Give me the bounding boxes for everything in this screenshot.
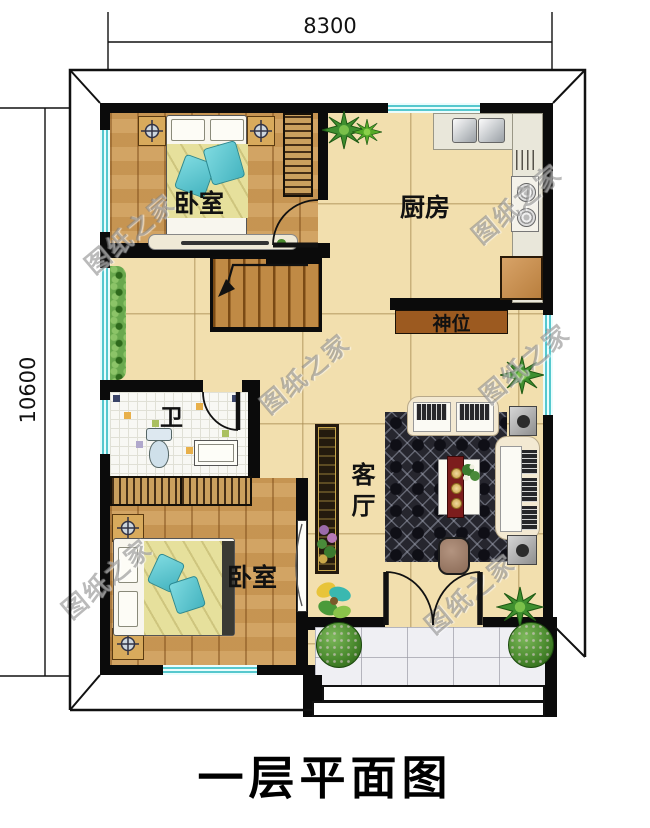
window-hall-left	[100, 268, 110, 380]
dimension-height-label: 10600	[16, 355, 40, 425]
sofa-cushion	[416, 404, 447, 420]
sofa-cushion	[459, 404, 490, 420]
floor-plan-canvas: 神位	[0, 0, 650, 828]
window-kitchen-top	[388, 103, 480, 113]
wardrobe-divider	[180, 478, 182, 504]
planter-strip	[110, 266, 126, 380]
kitchen-cabinet	[500, 256, 543, 300]
bush-icon	[508, 622, 554, 668]
plant-icon	[496, 586, 544, 628]
shrine-label: 神位	[432, 309, 470, 336]
wardrobe-top-bedroom	[283, 113, 313, 197]
mosaic-tile	[186, 447, 193, 454]
mosaic-tile	[152, 420, 159, 427]
toilet-bowl	[149, 440, 169, 468]
nightstand	[247, 116, 275, 146]
nightstand	[138, 116, 166, 146]
table-flower-decor	[458, 460, 482, 488]
ottoman-stool	[438, 537, 470, 575]
bathroom-label: 卫	[160, 398, 183, 432]
plan-title: 一层平面图	[140, 742, 510, 808]
bedroom-bottom-door	[297, 520, 307, 612]
compass-decor-icon	[250, 120, 272, 142]
mosaic-tile	[222, 430, 229, 437]
dimension-width-label: 8300	[270, 14, 390, 38]
desk-item	[181, 241, 269, 245]
mosaic-tile	[232, 395, 239, 402]
wall-bathroom-top-left	[100, 380, 203, 392]
bush-icon	[316, 622, 362, 668]
plant-icon	[352, 118, 382, 146]
flower-decor	[312, 520, 344, 566]
bedroom-bottom-label: 卧室	[227, 558, 277, 594]
compass-decor-icon	[141, 120, 163, 142]
mosaic-tile	[136, 441, 143, 448]
window-bedroom-bottom	[163, 665, 257, 675]
entry-step	[322, 685, 545, 702]
shrine-cabinet: 神位	[395, 310, 508, 334]
stair-landing-edge	[266, 256, 322, 264]
entry-step	[312, 701, 545, 717]
table-plate	[451, 498, 462, 509]
bed-pillow	[210, 119, 244, 141]
living-room-label: 客厅	[344, 462, 379, 524]
mosaic-tile	[196, 403, 203, 410]
kitchen-label: 厨房	[400, 188, 450, 224]
sofa-cushion	[522, 506, 537, 530]
bed-pillow	[118, 591, 138, 627]
vanity-basin	[198, 444, 234, 462]
side-table	[509, 406, 537, 436]
bedroom-desk	[148, 234, 298, 250]
desk-plant	[277, 239, 286, 247]
compass-decor-icon	[117, 633, 139, 655]
window-bathroom-left	[100, 400, 110, 454]
staircase	[210, 256, 322, 332]
window-bedroom-top-left	[100, 130, 110, 232]
kitchen-sink-left-basin	[452, 118, 477, 143]
sofa-right	[495, 436, 540, 540]
bathroom-vanity	[194, 440, 238, 466]
sofa-cushion	[522, 478, 537, 502]
sofa-top	[407, 396, 499, 436]
bedroom-top-label: 卧室	[174, 184, 224, 220]
sofa-cushion	[522, 450, 537, 474]
butterfly-decor	[312, 576, 356, 626]
mosaic-tile	[113, 395, 120, 402]
mosaic-tile	[124, 412, 131, 419]
sofa-seat	[500, 446, 522, 532]
kitchen-sink-right-basin	[478, 118, 505, 143]
bed-pillow	[171, 119, 205, 141]
